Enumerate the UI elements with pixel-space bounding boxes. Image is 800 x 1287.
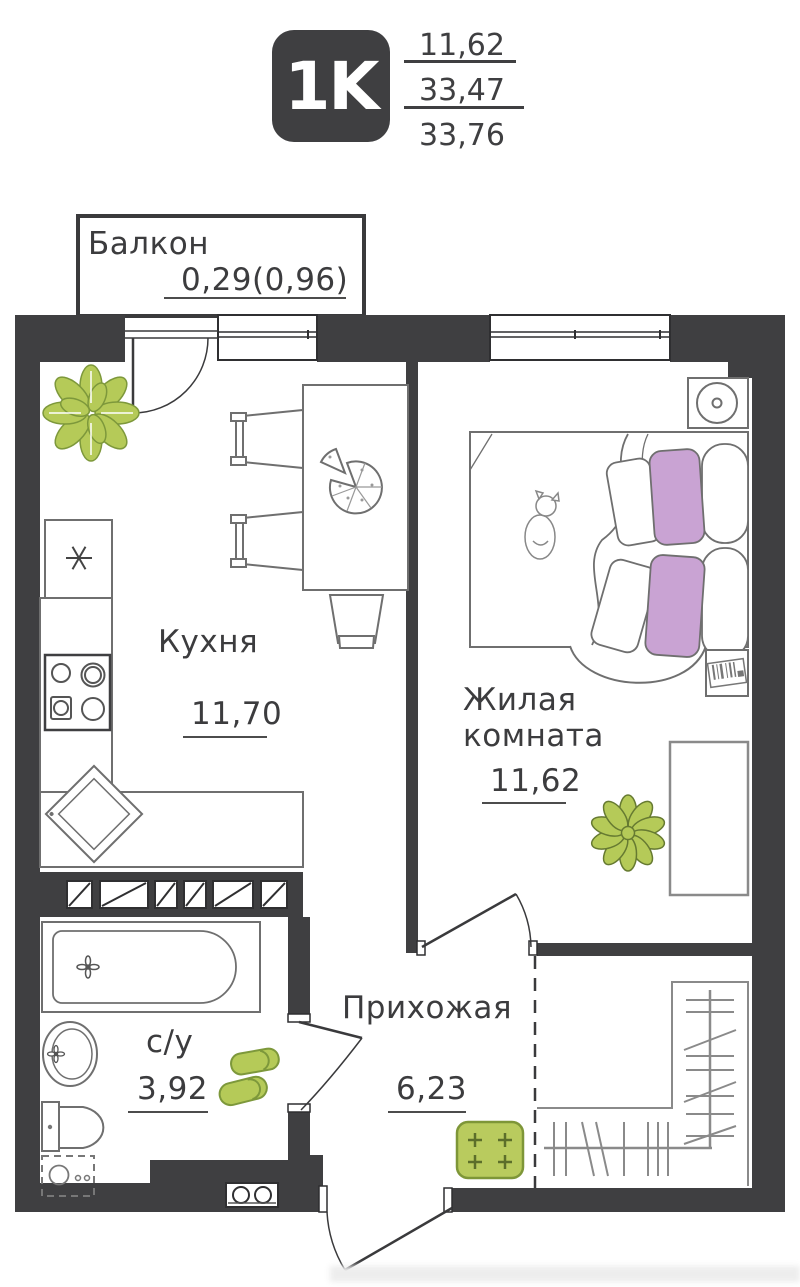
dining-table	[303, 385, 408, 590]
balcony-label: Балкон	[88, 226, 209, 262]
balcony-area-underline	[164, 297, 346, 299]
floorplan-page: 1K 11,62 33,47 33,76	[0, 0, 800, 1287]
kitchen-window	[218, 315, 317, 360]
hallway-area: 6,23	[396, 1071, 467, 1107]
living-room-area: 11,62	[490, 763, 581, 799]
watermark-strip	[330, 1266, 800, 1282]
electrical-panel	[226, 1183, 278, 1207]
stool	[330, 595, 383, 648]
hangers	[554, 1000, 736, 1176]
kitchen-area-underline	[183, 736, 267, 738]
wardrobe	[537, 982, 748, 1186]
living-room-door	[417, 894, 537, 955]
living-room-label: Жилая комната	[463, 682, 613, 754]
vent-shafts	[67, 881, 287, 908]
bathroom-door	[288, 1014, 362, 1112]
bathroom-area-underline	[128, 1111, 208, 1113]
stove	[45, 655, 110, 730]
kitchen-area: 11,70	[191, 696, 282, 732]
toilet	[42, 1102, 103, 1151]
bathtub	[42, 922, 260, 1012]
living-room-window	[490, 315, 670, 360]
living-room-area-underline	[482, 802, 566, 804]
desk	[670, 742, 748, 895]
bathroom-area: 3,92	[137, 1071, 208, 1107]
side-table	[706, 650, 748, 696]
bathroom-label: с/у	[146, 1024, 193, 1060]
kitchen-chairs	[231, 410, 303, 570]
lamp-icon	[697, 383, 737, 423]
bed	[470, 432, 748, 683]
plant-icon	[43, 365, 139, 461]
kitchen-label: Кухня	[158, 624, 258, 660]
entrance-door	[319, 1186, 452, 1270]
fridge	[45, 520, 112, 598]
hallway-label: Прихожая	[342, 990, 512, 1026]
doormat-icon	[457, 1122, 523, 1178]
slippers-icon	[217, 1047, 280, 1107]
balcony-door	[125, 331, 218, 413]
nightstand	[688, 378, 748, 428]
hallway-area-underline	[388, 1111, 466, 1113]
bathroom-sink	[43, 1022, 97, 1086]
pouf-icon	[589, 795, 667, 871]
balcony-area: 0,29(0,96)	[181, 262, 348, 298]
